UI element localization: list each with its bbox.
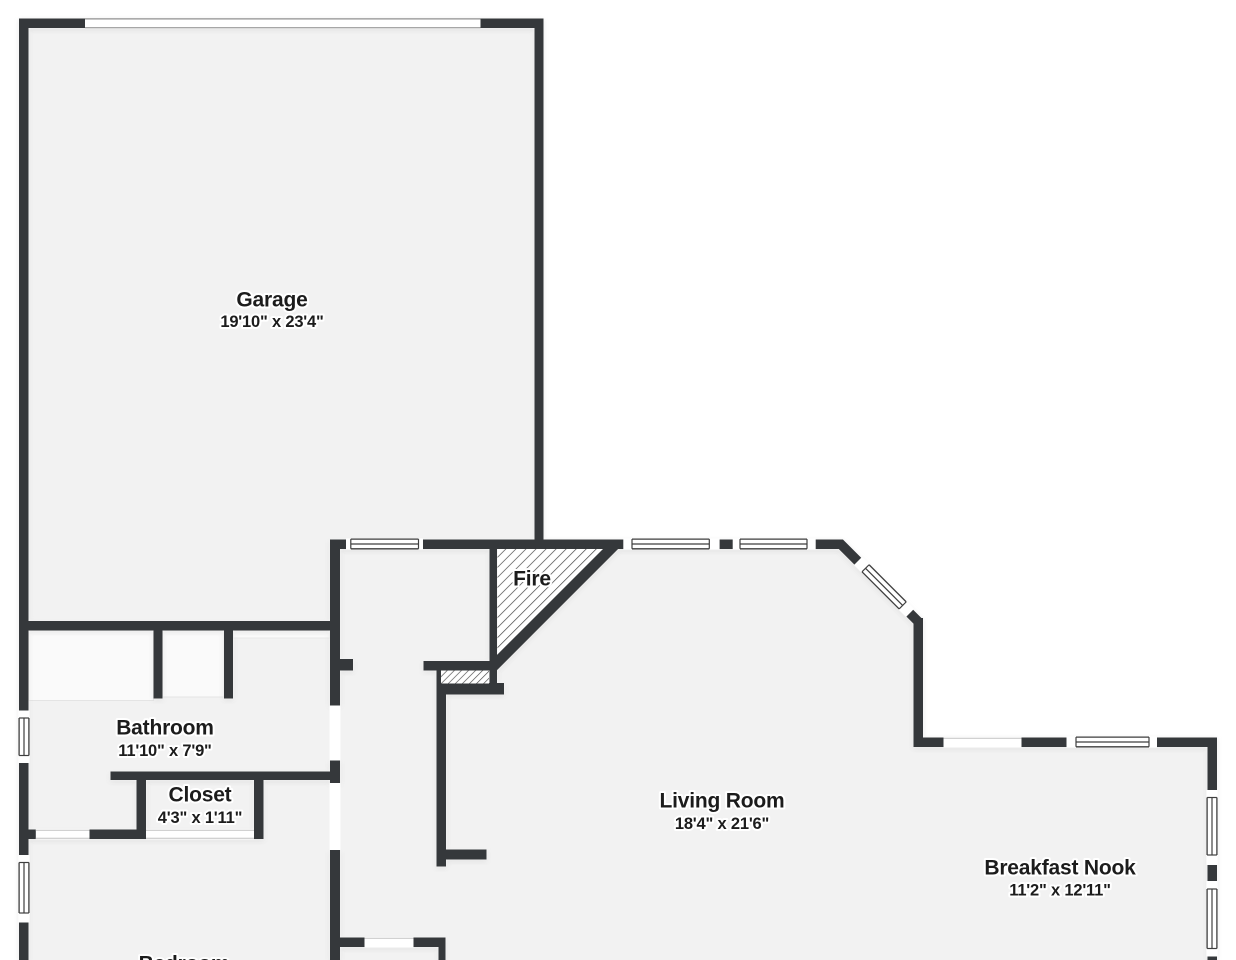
svg-text:11'2" x 12'11": 11'2" x 12'11" <box>1009 882 1110 900</box>
svg-text:Fire: Fire <box>513 568 551 591</box>
svg-text:11'10" x 7'9": 11'10" x 7'9" <box>118 742 211 760</box>
svg-text:Breakfast Nook: Breakfast Nook <box>984 857 1136 880</box>
svg-text:Closet: Closet <box>169 784 232 807</box>
svg-text:Bathroom: Bathroom <box>116 717 214 740</box>
svg-text:4'3" x 1'11": 4'3" x 1'11" <box>158 809 242 827</box>
svg-text:Garage: Garage <box>236 289 307 312</box>
svg-text:19'10" x 23'4": 19'10" x 23'4" <box>220 313 323 331</box>
svg-text:18'4" x 21'6": 18'4" x 21'6" <box>675 815 769 833</box>
svg-text:Living Room: Living Room <box>660 790 785 813</box>
svg-text:Bedroom: Bedroom <box>139 953 230 960</box>
